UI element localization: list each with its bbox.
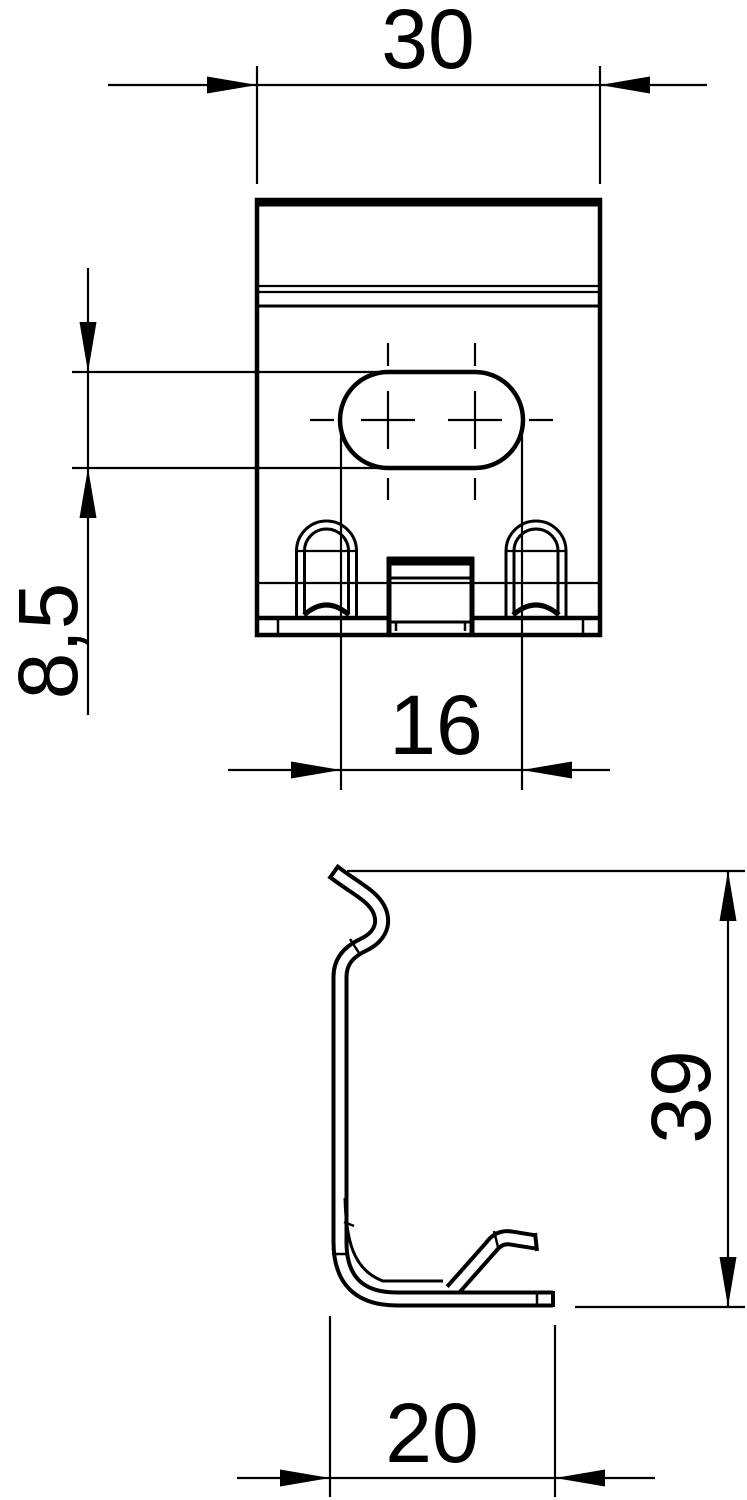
lug-bump (304, 605, 349, 615)
arrow-down-icon (80, 322, 97, 372)
arch-lug-right (506, 521, 566, 618)
side-view (329, 865, 553, 1307)
dim-label-39: 39 (634, 1050, 728, 1143)
tab-end-face (535, 1233, 537, 1251)
bottom-strip (259, 618, 598, 633)
arrow-down-icon (720, 1257, 737, 1307)
dim-slot-height: 8,5 (1, 268, 430, 715)
lug-bump (513, 605, 559, 615)
dim-label-16: 16 (389, 678, 482, 772)
arrow-left-icon (522, 762, 572, 779)
dimensions: 30 8,5 16 39 (1, 0, 745, 1497)
technical-drawing: 30 8,5 16 39 (0, 0, 747, 1500)
dim-label-20: 20 (385, 1386, 478, 1480)
arch-lug-left (297, 521, 357, 618)
dim-side-height: 39 (347, 871, 745, 1307)
arch-inner (514, 529, 558, 551)
center-tab (387, 557, 474, 633)
dim-top-width: 30 (108, 0, 707, 184)
dim-label-30: 30 (381, 0, 474, 86)
arrow-right-icon (291, 762, 341, 779)
arrow-right-icon (280, 1470, 330, 1487)
dim-label-8-5: 8,5 (1, 583, 95, 700)
arrow-left-icon (555, 1470, 605, 1487)
drawing-page: 30 8,5 16 39 (0, 0, 747, 1500)
arrow-right-icon (207, 77, 257, 94)
tab-layer-line (345, 1198, 443, 1281)
top-view (257, 200, 600, 635)
arrow-left-icon (600, 77, 650, 94)
arrow-up-icon (720, 871, 737, 921)
arrow-up-icon (80, 468, 97, 518)
dim-side-depth: 20 (237, 1316, 655, 1497)
